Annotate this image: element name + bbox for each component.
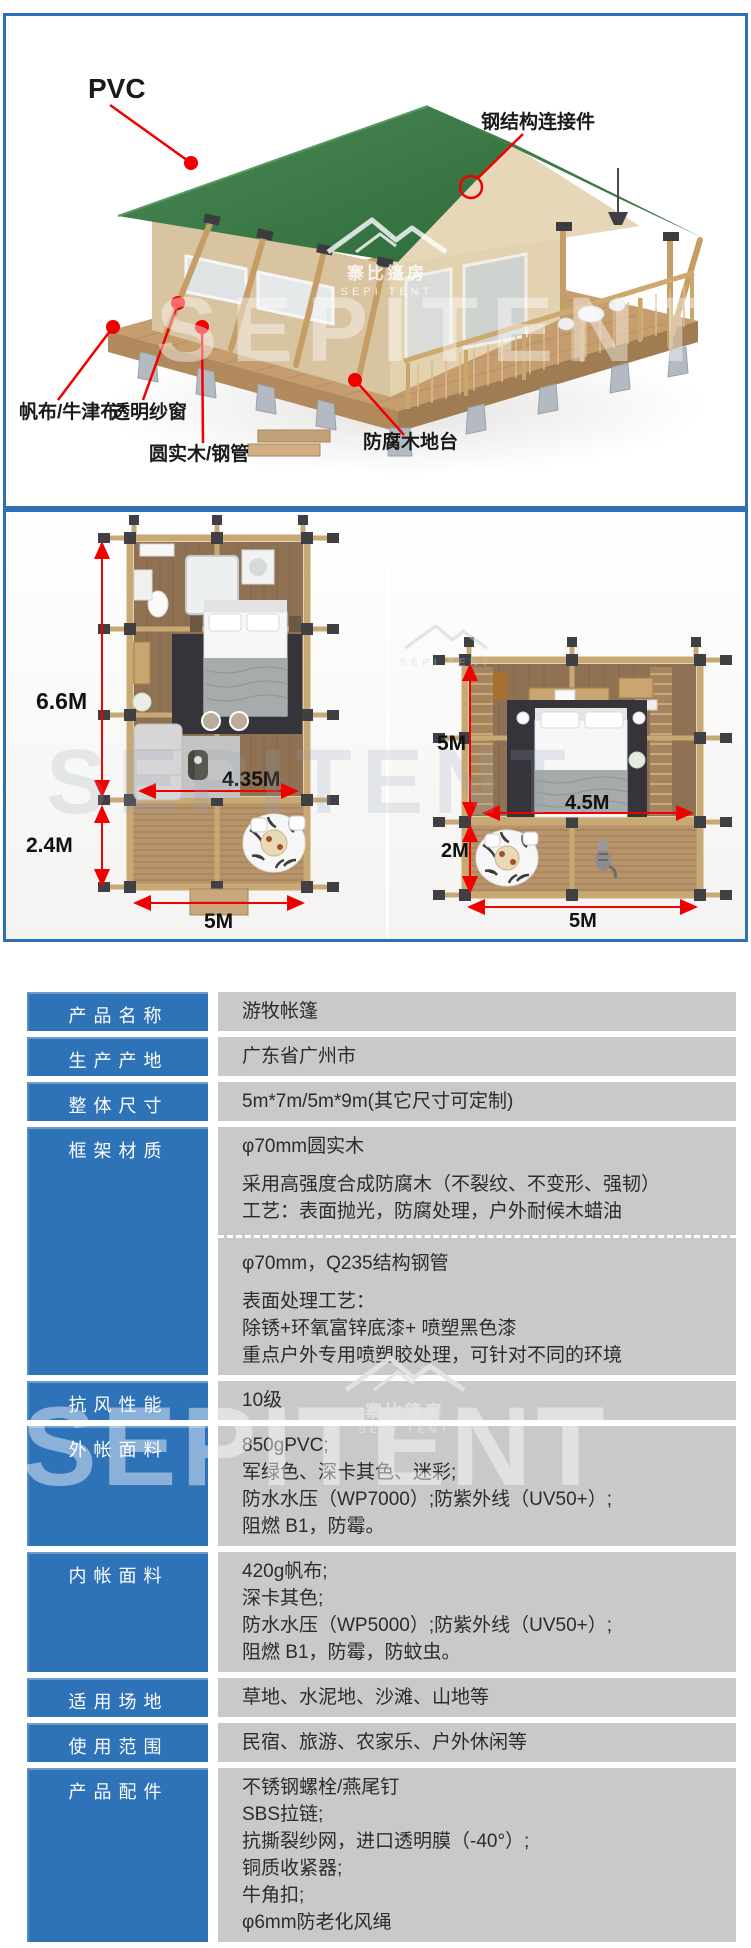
spec-value-line: 防水水压（WP5000）;防紫外线（UV50+）; <box>242 1612 722 1639</box>
spec-row-label: 适用场地 <box>27 1678 208 1717</box>
spec-value-line: 采用高强度合成防腐木（不裂纹、不变形、强韧） <box>242 1171 722 1198</box>
spec-value-line: 10级 <box>242 1387 722 1414</box>
dashed-divider <box>218 1235 736 1238</box>
spec-row-label: 内帐面料 <box>27 1552 208 1672</box>
spec-row: 产品配件不锈钢螺栓/燕尾钉SBS拉链;抗撕裂纱网，进口透明膜（-40°）;铜质收… <box>27 1768 736 1942</box>
spec-row: 内帐面料420g帆布;深卡其色;防水水压（WP5000）;防紫外线（UV50+）… <box>27 1552 736 1672</box>
spec-value-line: 850gPVC; <box>242 1432 722 1459</box>
spec-row-value: 5m*7m/5m*9m(其它尺寸可定制) <box>218 1082 736 1121</box>
spec-value-line: φ6mm防老化风绳 <box>242 1909 722 1936</box>
spec-value-line: φ70mm圆实木 <box>242 1133 722 1160</box>
spec-value-line: 表面处理工艺： <box>242 1288 722 1315</box>
spec-row-value: 民宿、旅游、农家乐、户外休闲等 <box>218 1723 736 1762</box>
spec-value-line: 阻燃 B1，防霉，防蚊虫。 <box>242 1639 722 1666</box>
spec-value-line: 除锈+环氧富锌底漆+ 喷塑黑色漆 <box>242 1315 722 1342</box>
spec-row: 使用范围民宿、旅游、农家乐、户外休闲等 <box>27 1723 736 1762</box>
floor-plan-left-pane: 6.6M 4.35M 2.4M 5M <box>6 512 386 939</box>
spec-value-line: SBS拉链; <box>242 1801 722 1828</box>
spec-value-line: 工艺：表面抛光，防腐处理，户外耐候木蜡油 <box>242 1198 722 1225</box>
screen-window-label: 透明纱窗 <box>111 397 187 424</box>
spec-row: 框架材质φ70mm圆实木采用高强度合成防腐木（不裂纹、不变形、强韧）工艺：表面抛… <box>27 1127 736 1375</box>
spec-row-label: 外帐面料 <box>27 1426 208 1546</box>
spec-row-label: 生产产地 <box>27 1037 208 1076</box>
spec-row-label: 使用范围 <box>27 1723 208 1762</box>
spec-value-line: 游牧帐篷 <box>242 998 722 1025</box>
spec-value-line: 不锈钢螺栓/燕尾钉 <box>242 1774 722 1801</box>
spec-value-line: 重点户外专用喷塑胶处理，可针对不同的环境 <box>242 1342 722 1369</box>
left-plan-cabin-depth: 6.6M <box>36 688 87 715</box>
floor-plans-section: 6.6M 4.35M 2.4M 5M <box>3 509 748 942</box>
right-plan-total-width: 5M <box>569 910 597 933</box>
spec-value-line: 民宿、旅游、农家乐、户外休闲等 <box>242 1729 722 1756</box>
spec-value-line: 阻燃 B1，防霉。 <box>242 1513 722 1540</box>
spec-row: 抗风性能10级 <box>27 1381 736 1420</box>
spec-row-value: 10级 <box>218 1381 736 1420</box>
spec-value-line: φ70mm，Q235结构钢管 <box>242 1250 722 1277</box>
spec-row: 生产产地广东省广州市 <box>27 1037 736 1076</box>
spec-row-value: 草地、水泥地、沙滩、山地等 <box>218 1678 736 1717</box>
floor-plan-right <box>389 512 745 939</box>
spec-row-value: φ70mm圆实木采用高强度合成防腐木（不裂纹、不变形、强韧）工艺：表面抛光，防腐… <box>218 1127 736 1375</box>
spec-value-line: 深卡其色; <box>242 1585 722 1612</box>
spec-value-line: 抗撕裂纱网，进口透明膜（-40°）; <box>242 1828 722 1855</box>
product-page: { "theme": { "accent_blue": "#2e6fb7", "… <box>0 0 751 1891</box>
pvc-label: PVC <box>88 73 146 105</box>
spec-row-label: 产品配件 <box>27 1768 208 1942</box>
steel-connector-label: 钢结构连接件 <box>481 107 595 134</box>
spec-value-line: 广东省广州市 <box>242 1043 722 1070</box>
spec-row: 外帐面料850gPVC;军绿色、深卡其色、迷彩;防水水压（WP7000）;防紫外… <box>27 1426 736 1546</box>
canvas-oxford-label: 帆布/牛津布 <box>19 397 119 424</box>
spec-value-line: 军绿色、深卡其色、迷彩; <box>242 1459 722 1486</box>
spec-row-value: 不锈钢螺栓/燕尾钉SBS拉链;抗撕裂纱网，进口透明膜（-40°）;铜质收紧器;牛… <box>218 1768 736 1942</box>
left-plan-total-width: 5M <box>204 910 233 934</box>
tent-render-section: PVC 钢结构连接件 帆布/牛津布 透明纱窗 圆实木/钢管 防腐木地台 SEPI… <box>3 13 748 509</box>
right-plan-inner-width: 4.5M <box>565 792 609 815</box>
floor-plan-right-pane: 5M 4.5M 2M 5M <box>389 512 745 939</box>
spec-value-line: 防水水压（WP7000）;防紫外线（UV50+）; <box>242 1486 722 1513</box>
spec-value-line: 草地、水泥地、沙滩、山地等 <box>242 1684 722 1711</box>
spec-row-label: 框架材质 <box>27 1127 208 1375</box>
spec-row-label: 抗风性能 <box>27 1381 208 1420</box>
right-plan-deck-depth: 2M <box>441 840 469 863</box>
spec-value-line <box>242 1160 722 1171</box>
left-plan-deck-depth: 2.4M <box>26 834 73 858</box>
spec-row: 产品名称游牧帐篷 <box>27 992 736 1031</box>
spec-value-line: 铜质收紧器; <box>242 1855 722 1882</box>
spec-row: 整体尺寸5m*7m/5m*9m(其它尺寸可定制) <box>27 1082 736 1121</box>
spec-table: 产品名称游牧帐篷生产产地广东省广州市整体尺寸5m*7m/5m*9m(其它尺寸可定… <box>27 992 736 1948</box>
spec-row-value: 广东省广州市 <box>218 1037 736 1076</box>
spec-value-line: 牛角扣; <box>242 1882 722 1909</box>
spec-row-value: 850gPVC;军绿色、深卡其色、迷彩;防水水压（WP7000）;防紫外线（UV… <box>218 1426 736 1546</box>
spec-value-line: 5m*7m/5m*9m(其它尺寸可定制) <box>242 1088 722 1115</box>
spec-row-value: 420g帆布;深卡其色;防水水压（WP5000）;防紫外线（UV50+）;阻燃 … <box>218 1552 736 1672</box>
spec-row-value: 游牧帐篷 <box>218 992 736 1031</box>
wood-steel-pole-label: 圆实木/钢管 <box>149 439 249 466</box>
spec-row-label: 整体尺寸 <box>27 1082 208 1121</box>
spec-value-line <box>242 1277 722 1288</box>
spec-value-line: 420g帆布; <box>242 1558 722 1585</box>
spec-row-label: 产品名称 <box>27 992 208 1031</box>
right-plan-cabin-depth: 5M <box>437 732 466 756</box>
floor-plan-left <box>6 512 386 939</box>
spec-row: 适用场地草地、水泥地、沙滩、山地等 <box>27 1678 736 1717</box>
deck-platform-label: 防腐木地台 <box>363 427 458 454</box>
left-plan-inner-width: 4.35M <box>222 768 280 792</box>
